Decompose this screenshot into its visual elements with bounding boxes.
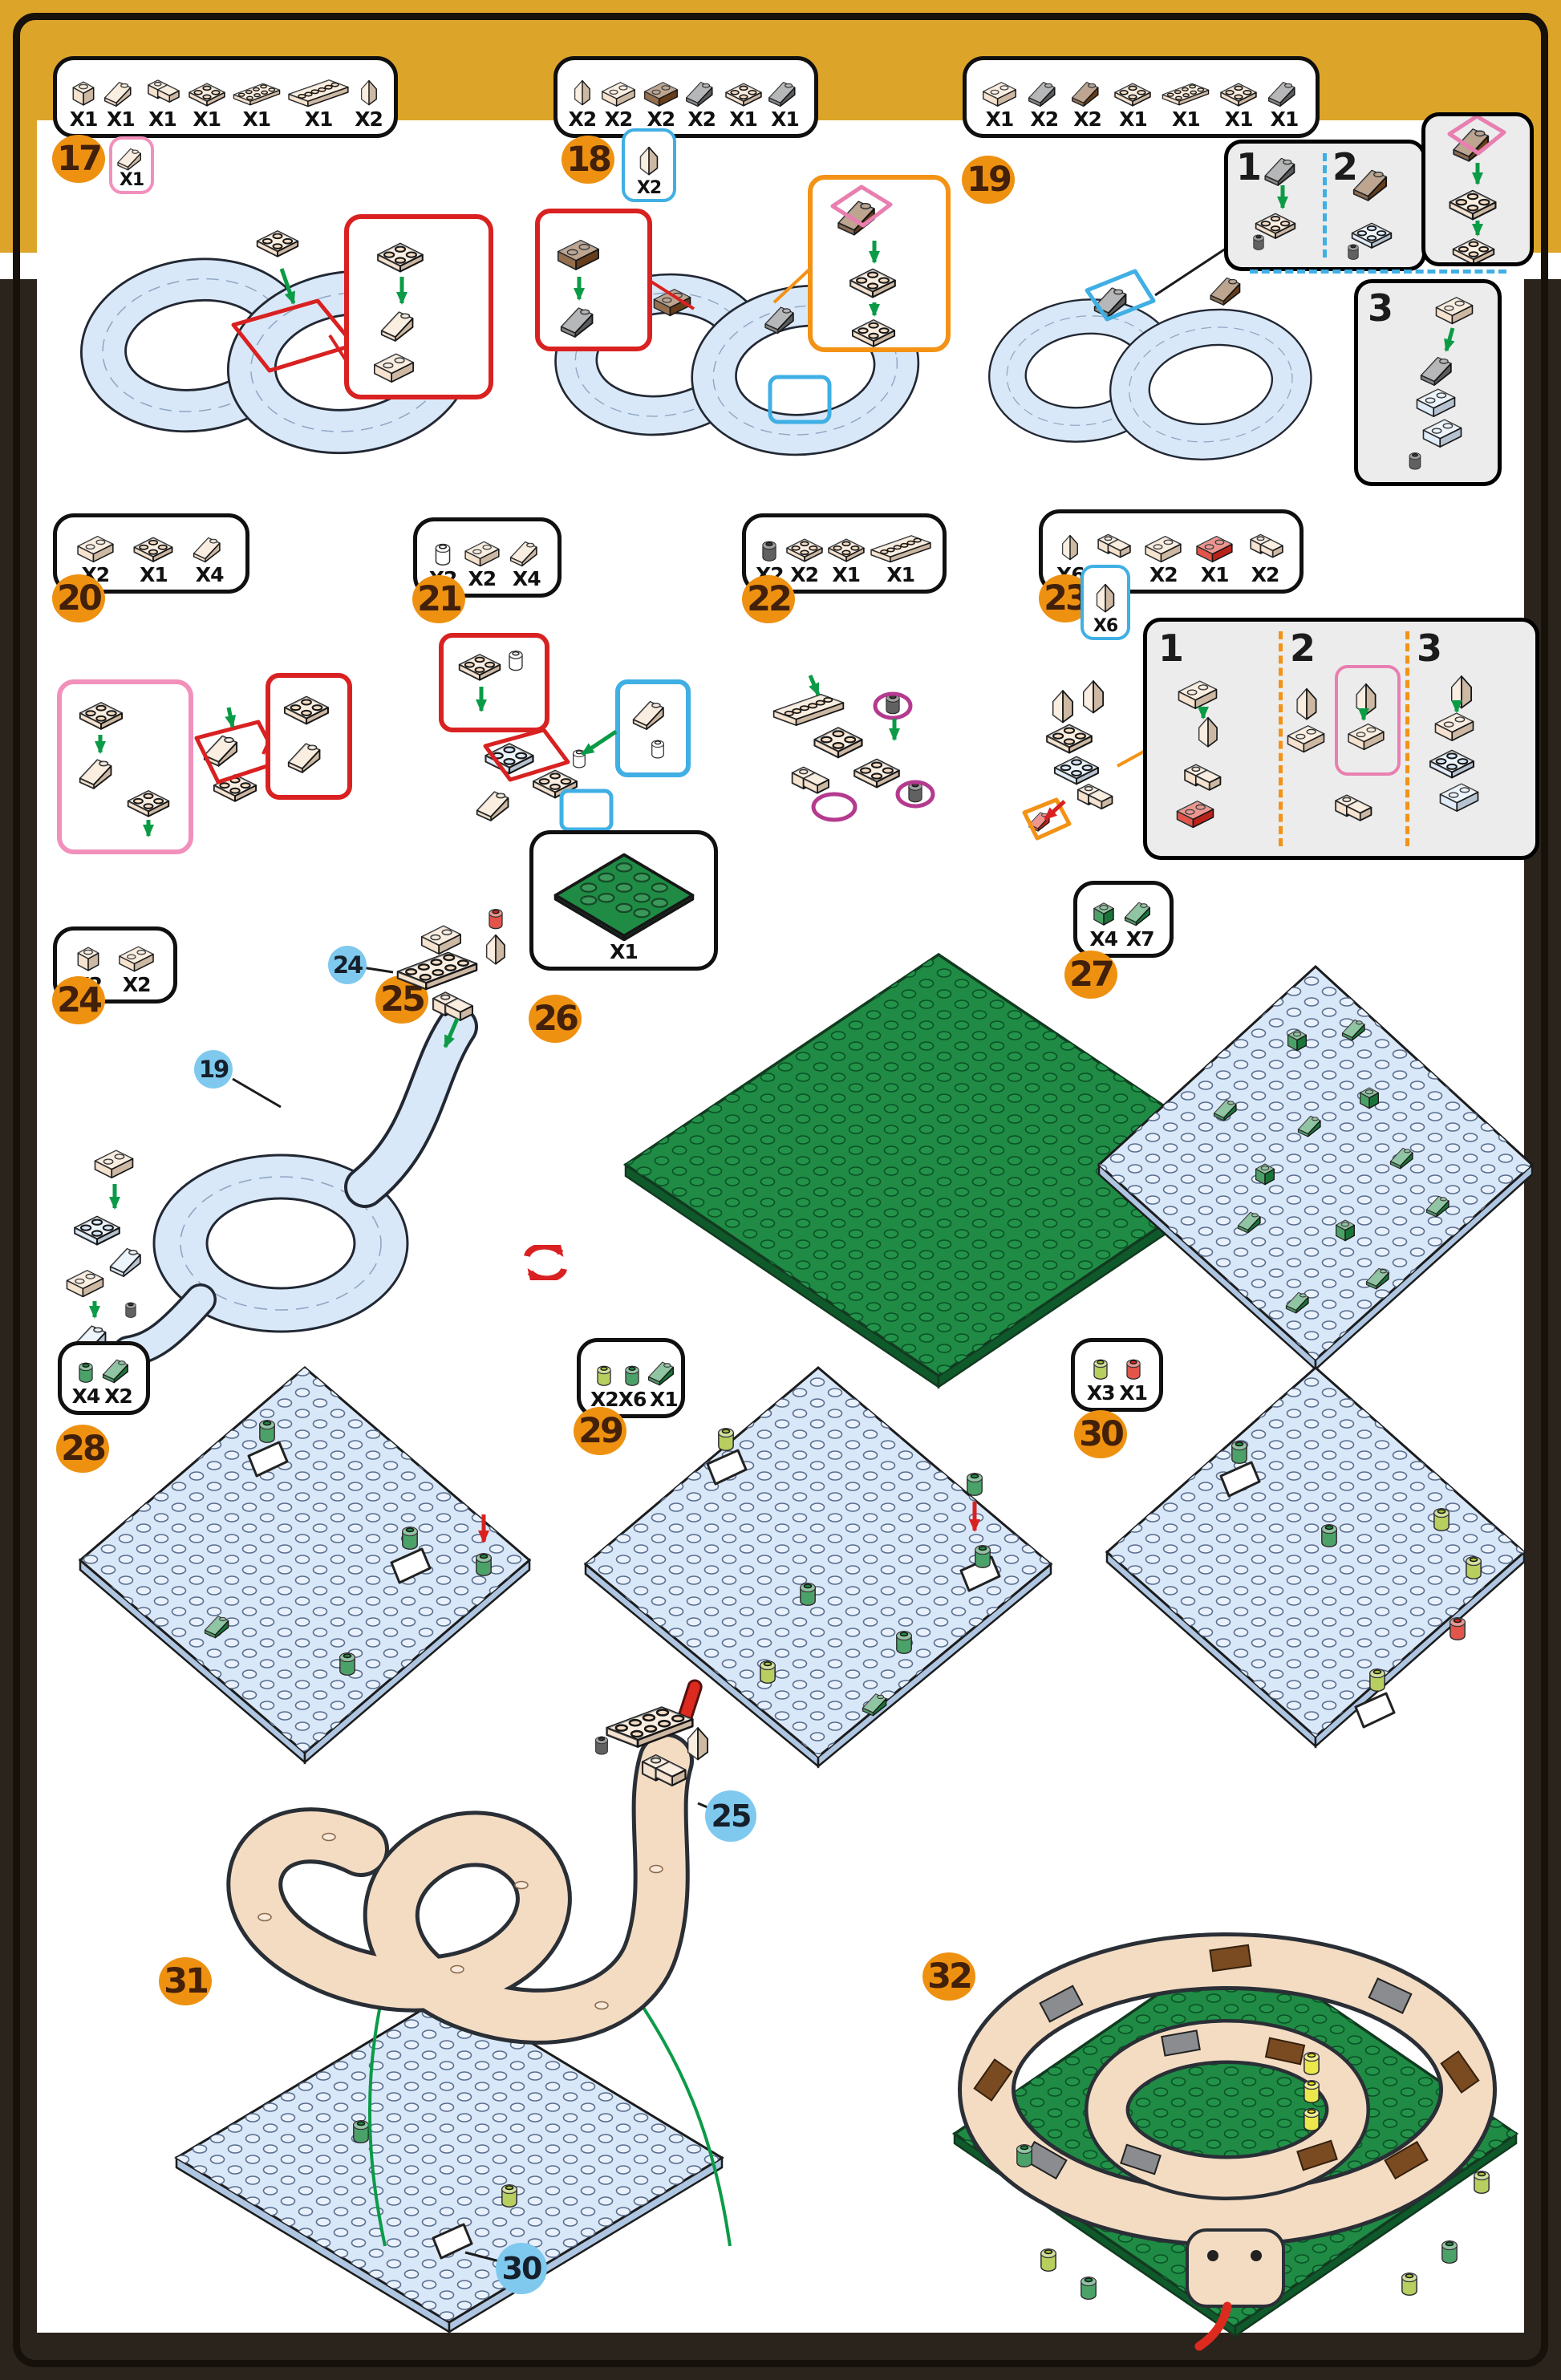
- tan-plate-2x4-icon: [1160, 79, 1211, 108]
- step19-substep-panel-12: 1 2: [1224, 140, 1426, 271]
- substep-number: 2: [1332, 148, 1358, 185]
- part-count: X2: [790, 565, 818, 585]
- step-22-badge: 22: [742, 575, 795, 623]
- step17-parts-box: X1 X1 X1 X1 X1 X1 X2: [53, 56, 398, 138]
- green-slope-plant-icon: [1122, 896, 1158, 928]
- part: X4: [507, 536, 545, 589]
- step20-illustration: [56, 634, 353, 858]
- part: X4: [1089, 898, 1118, 949]
- step-19-badge: 19: [962, 156, 1015, 204]
- part: X2: [641, 78, 681, 129]
- part-count: X2: [605, 109, 633, 129]
- callout-circle-head: 25: [705, 1790, 756, 1842]
- callout-circle-plate: 30: [496, 2243, 547, 2294]
- tan-slope-2x2-icon: [1218, 78, 1259, 108]
- tan-brick-1x2-icon: [979, 78, 1020, 108]
- green-brick-1x1-icon: [1089, 898, 1118, 928]
- step22-illustration: [738, 642, 971, 858]
- part-count: X1: [832, 565, 860, 585]
- tan-plate-2x6-icon: [286, 76, 351, 108]
- part-count: X4: [513, 569, 541, 589]
- part: X1: [867, 532, 935, 585]
- part-count: X1: [1271, 109, 1299, 129]
- step32-illustration: [922, 1909, 1540, 2358]
- step19-detail-panel: [1421, 112, 1534, 266]
- part-count: X1: [120, 172, 144, 189]
- tan-wedge-plate-icon: [507, 536, 545, 568]
- part-count: X2: [687, 109, 716, 129]
- step-17-badge: 17: [52, 135, 105, 183]
- tan-wedge-icon: [1092, 578, 1119, 618]
- part-count: X1: [148, 109, 176, 129]
- part-count: X1: [1172, 109, 1200, 129]
- part-count: X1: [771, 109, 799, 129]
- tan-plate-2x2-icon: [723, 78, 764, 108]
- tan-plate-2x2-icon: [1112, 78, 1154, 108]
- substep-2-pieces: [1282, 662, 1402, 854]
- tan-plate-1x6-icon: [867, 532, 935, 564]
- step23-illustration: [1023, 670, 1151, 870]
- part: X1: [766, 76, 803, 129]
- tan-brick-1x2-icon: [598, 78, 639, 108]
- part: X2: [568, 76, 596, 129]
- part-count: X2: [1030, 109, 1058, 129]
- tan-wedge-icon: [1058, 530, 1082, 564]
- step30-illustration: [1091, 1356, 1540, 1757]
- part: X2: [461, 537, 503, 589]
- green-baseplate-icon: [548, 847, 700, 941]
- part: X2: [1026, 76, 1063, 129]
- part: X1: [548, 847, 700, 962]
- part-count: X1: [193, 109, 221, 129]
- tan-slope-1x2-icon: [102, 76, 139, 108]
- white-round-icon: [432, 537, 454, 568]
- tan-wedge-plate-icon: [190, 532, 229, 564]
- part-count: X1: [986, 109, 1014, 129]
- gray-slope-1x2-icon: [683, 76, 720, 108]
- tan-slope-1x2-icon: [115, 144, 148, 172]
- brown-brick-1x2-icon: [641, 78, 681, 108]
- callout-circle-body: 19: [194, 1050, 233, 1089]
- tan-plate-rounded-icon: [74, 532, 117, 564]
- part: X2: [784, 533, 825, 585]
- part: X1: [1266, 76, 1303, 129]
- step23-highlight-part: X6: [1081, 565, 1130, 640]
- tan-wedge-icon: [570, 76, 594, 108]
- step19-substep-panel-3: 3: [1354, 279, 1502, 486]
- callout-circle-head: 24: [328, 946, 367, 984]
- part: X1: [102, 76, 139, 129]
- substep-divider: [1323, 153, 1327, 257]
- tan-plate-2x4-icon: [231, 79, 282, 108]
- tan-plate-wall-icon: [1244, 529, 1286, 564]
- part: X1: [68, 76, 99, 129]
- gray-slope-2x2-icon: [766, 76, 803, 108]
- part: X1: [142, 75, 182, 129]
- part: X1: [1160, 79, 1211, 129]
- detail-pieces: [1425, 116, 1530, 262]
- part: X2: [1069, 76, 1106, 129]
- substep-divider: [1250, 270, 1506, 274]
- step27-illustration: [1091, 955, 1540, 1372]
- part-count: X2: [355, 109, 383, 129]
- part-count: X1: [107, 109, 135, 129]
- tan-slope-2x2-icon: [186, 78, 228, 108]
- part-count: X1: [1225, 109, 1253, 129]
- part: X1: [1193, 532, 1236, 585]
- part-count: X1: [140, 565, 168, 585]
- part: X4: [190, 532, 229, 585]
- part-count: X1: [70, 109, 98, 129]
- part: X1: [286, 76, 351, 129]
- step27-parts-box: X4 X7: [1073, 881, 1174, 958]
- black-round-icon: [759, 535, 780, 564]
- step-21-badge: 21: [412, 575, 465, 623]
- part-count: X2: [568, 109, 596, 129]
- part: X2: [1141, 532, 1185, 585]
- part-count: X2: [1149, 565, 1178, 585]
- tan-plate-1x3-icon: [1141, 532, 1185, 564]
- substep-1-pieces: [1152, 662, 1272, 854]
- part: X2: [683, 76, 720, 129]
- step18-parts-box: X2 X2 X2 X2 X1 X1: [553, 56, 818, 138]
- substep-3-pieces: [1358, 283, 1498, 482]
- tan-slope-tall-icon: [357, 76, 381, 108]
- dark-left-strip: [0, 279, 37, 2380]
- tan-plate-2x3-icon: [784, 533, 825, 564]
- part: X1: [1218, 78, 1259, 129]
- brown-slope-1x2-icon: [1069, 76, 1106, 108]
- part: X1: [1112, 78, 1154, 129]
- tan-plate-studs-icon: [825, 533, 867, 564]
- part: X1: [231, 79, 282, 129]
- step-26-badge: 26: [529, 995, 582, 1043]
- part: X7: [1122, 896, 1158, 949]
- step-20-badge: 20: [52, 574, 105, 622]
- part: X1: [723, 78, 764, 129]
- part: X2: [355, 76, 383, 129]
- part-count: X6: [1093, 618, 1117, 635]
- part: X1: [186, 78, 228, 129]
- part-count: X1: [243, 109, 271, 129]
- part-count: X4: [1089, 929, 1117, 949]
- part-count: X2: [647, 109, 675, 129]
- part-count: X2: [1073, 109, 1101, 129]
- step23-substep-panel: 1 2 3: [1143, 618, 1539, 860]
- step18-illustration: [529, 172, 955, 517]
- tan-plate-ball-icon: [131, 532, 176, 564]
- gray-slope-2x2-icon: [1266, 76, 1303, 108]
- tan-corner-plate-icon: [142, 75, 182, 108]
- step17-illustration: [53, 193, 502, 513]
- part: X1: [131, 532, 176, 585]
- part-count: X1: [886, 565, 914, 585]
- part: X2: [1244, 529, 1286, 585]
- red-curved-plate-icon: [1193, 532, 1236, 564]
- step17-highlight-part: X1: [109, 136, 154, 194]
- tan-brick-1x1-icon: [68, 76, 99, 108]
- part-count: X1: [1201, 565, 1229, 585]
- part-count: X4: [196, 565, 224, 585]
- tan-corner-brick-icon: [1092, 529, 1133, 564]
- part: X2: [598, 78, 639, 129]
- part: X1: [979, 78, 1020, 129]
- part-count: X2: [468, 569, 496, 589]
- part: X1: [825, 533, 867, 585]
- part-count: X1: [729, 109, 757, 129]
- gold-left-strip: [0, 120, 37, 253]
- part-count: X1: [305, 109, 333, 129]
- part-count: X2: [1251, 565, 1279, 585]
- step19-parts-box: X1 X2 X2 X1 X1 X1 X1: [963, 56, 1320, 138]
- tan-plate-clip-icon: [461, 537, 503, 568]
- step31-illustration: [120, 1685, 842, 2350]
- gray-slope-1x2-icon: [1026, 76, 1063, 108]
- part-count: X7: [1126, 929, 1154, 949]
- part-count: X1: [1119, 109, 1147, 129]
- instruction-page: X1 X1 X1 X1 X1 X1 X2 17 X1 X2 X2 X2 X2 X…: [0, 0, 1561, 2380]
- substep-3-pieces: [1409, 662, 1537, 854]
- rotate-icon: [527, 1247, 564, 1279]
